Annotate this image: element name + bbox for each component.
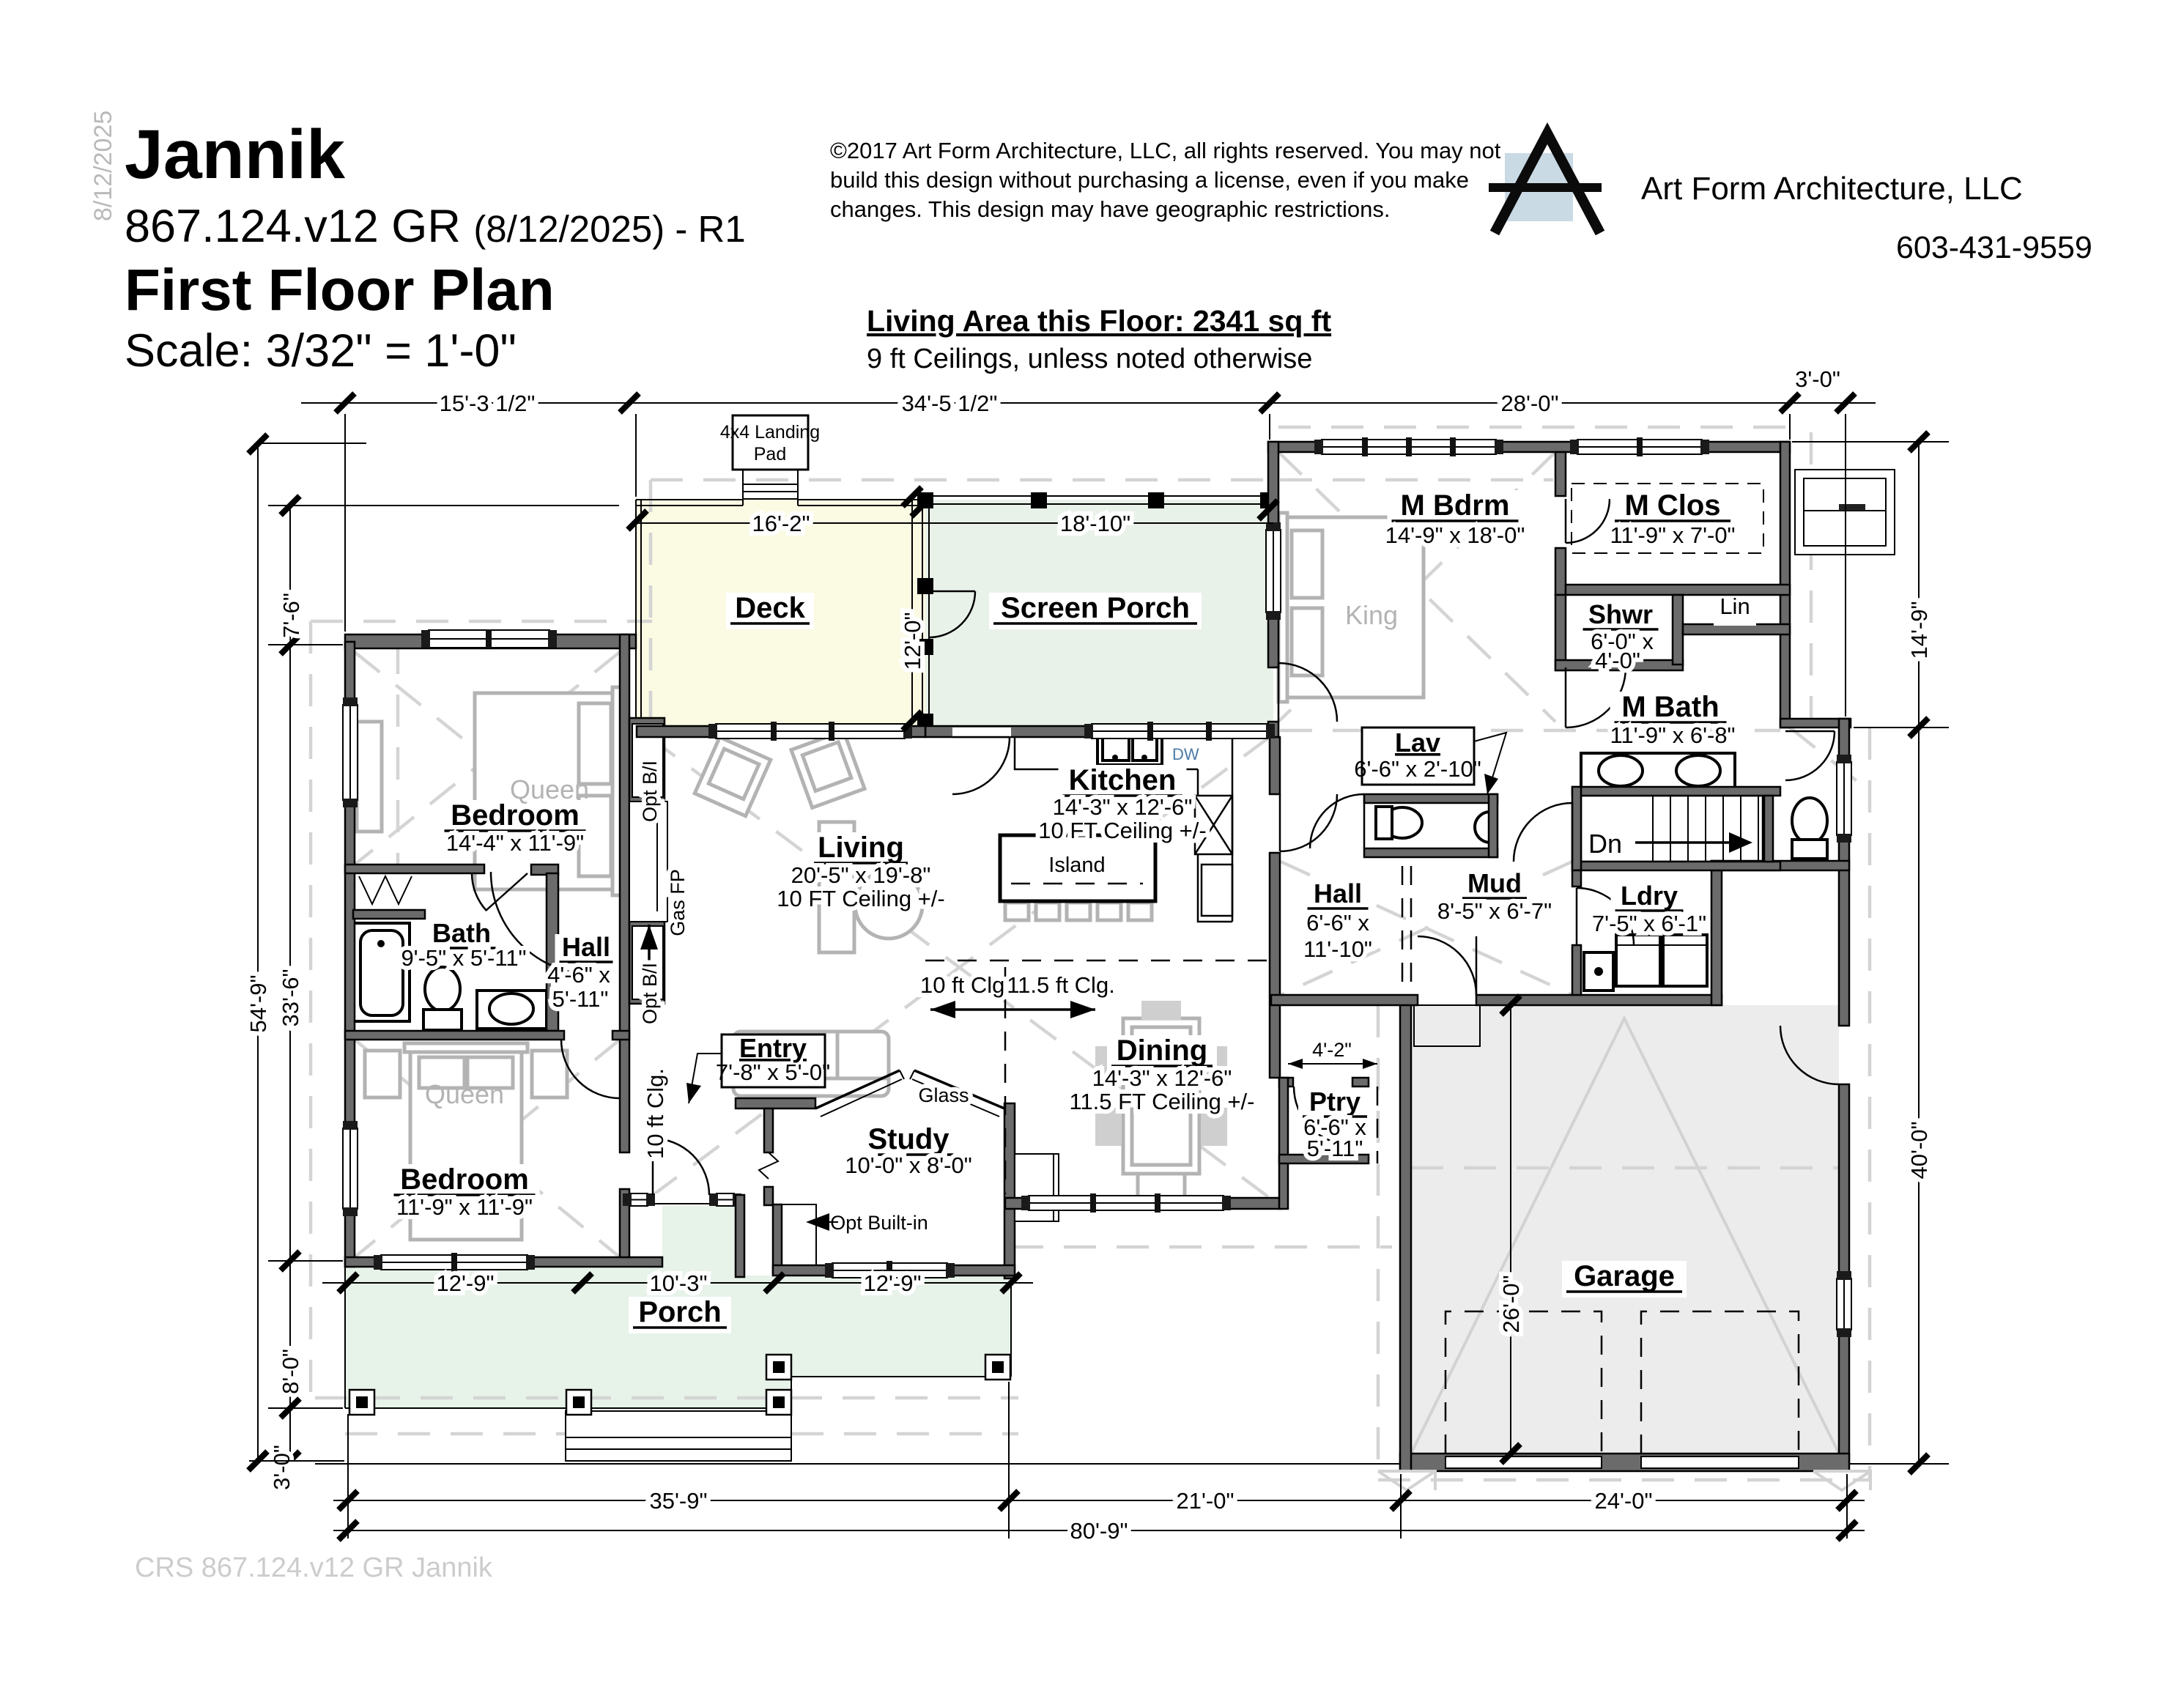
svg-text:3'-0": 3'-0" (269, 1445, 295, 1490)
svg-text:Hall: Hall (1314, 878, 1362, 908)
svg-text:8/12/2025: 8/12/2025 (89, 111, 117, 221)
svg-text:First Floor Plan: First Floor Plan (125, 257, 555, 322)
svg-text:Living Area this Floor: 2341 s: Living Area this Floor: 2341 sq ft (867, 304, 1331, 338)
svg-text:Gas FP: Gas FP (667, 869, 689, 936)
svg-text:34'-5 1/2": 34'-5 1/2" (902, 390, 998, 416)
svg-text:Lav: Lav (1395, 728, 1440, 758)
svg-text:Study: Study (867, 1123, 950, 1155)
svg-text:11'-9" x 7'-0": 11'-9" x 7'-0" (1610, 522, 1735, 548)
svg-text:Shwr: Shwr (1588, 599, 1653, 629)
svg-text:©2017 Art Form Architecture, L: ©2017 Art Form Architecture, LLC, all ri… (830, 138, 1501, 163)
svg-text:16'-2": 16'-2" (752, 511, 810, 536)
svg-text:14'-3" x 12'-6": 14'-3" x 12'-6" (1092, 1065, 1232, 1091)
svg-text:Lin: Lin (1720, 593, 1750, 619)
svg-text:Kitchen: Kitchen (1069, 764, 1177, 796)
svg-text:DW: DW (1172, 745, 1199, 763)
svg-text:28'-0": 28'-0" (1501, 390, 1559, 416)
svg-text:603-431-9559: 603-431-9559 (1896, 230, 2092, 265)
svg-text:11'-9" x 6'-8": 11'-9" x 6'-8" (1610, 722, 1735, 748)
svg-text:11'-10": 11'-10" (1303, 936, 1372, 962)
svg-text:Scale: 3/32" = 1'-0": Scale: 3/32" = 1'-0" (125, 325, 517, 377)
svg-text:6'-6" x: 6'-6" x (1306, 910, 1369, 936)
svg-text:M Clos: M Clos (1624, 489, 1720, 522)
svg-text:54'-9": 54'-9" (245, 975, 271, 1033)
svg-text:Opt B/I: Opt B/I (639, 963, 661, 1024)
svg-text:4'-0": 4'-0" (1595, 648, 1640, 673)
svg-text:10 ft Clg.: 10 ft Clg. (643, 1068, 668, 1159)
svg-text:10 FT Ceiling +/-: 10 FT Ceiling +/- (777, 886, 944, 911)
svg-text:8'-0": 8'-0" (278, 1349, 303, 1394)
svg-text:9 ft Ceilings, unless noted ot: 9 ft Ceilings, unless noted otherwise (867, 344, 1312, 374)
svg-text:Hall: Hall (562, 932, 610, 962)
svg-text:15'-3 1/2": 15'-3 1/2" (440, 390, 536, 416)
svg-text:6'-6" x 2'-10": 6'-6" x 2'-10" (1354, 756, 1481, 782)
svg-text:21'-0": 21'-0" (1177, 1488, 1234, 1514)
svg-text:7'-6": 7'-6" (278, 593, 304, 638)
svg-text:Queen: Queen (510, 774, 589, 804)
svg-text:Opt Built-in: Opt Built-in (830, 1212, 928, 1234)
svg-text:10 ft Clg.: 10 ft Clg. (920, 972, 1011, 998)
svg-text:14'-9" x 18'-0": 14'-9" x 18'-0" (1385, 522, 1525, 548)
svg-text:Bedroom: Bedroom (400, 1163, 529, 1196)
svg-text:Glass: Glass (918, 1084, 969, 1106)
svg-text:Mud: Mud (1467, 868, 1522, 898)
svg-text:changes. This design may have: changes. This design may have geographic… (830, 196, 1391, 222)
svg-text:3'-0": 3'-0" (1795, 366, 1840, 392)
svg-text:35'-9": 35'-9" (650, 1488, 708, 1514)
svg-text:Bath: Bath (432, 918, 491, 948)
svg-text:24'-0": 24'-0" (1595, 1488, 1653, 1514)
svg-text:Ptry: Ptry (1309, 1087, 1361, 1117)
svg-text:Opt B/I: Opt B/I (639, 760, 661, 822)
svg-text:4'-2": 4'-2" (1312, 1039, 1352, 1061)
svg-text:11.5 ft Clg.: 11.5 ft Clg. (1007, 972, 1115, 998)
svg-text:10'-3": 10'-3" (650, 1270, 708, 1296)
svg-text:M Bath: M Bath (1621, 691, 1719, 723)
svg-text:9'-5" x 5'-11": 9'-5" x 5'-11" (401, 945, 526, 971)
svg-text:20'-5" x 19'-8": 20'-5" x 19'-8" (791, 862, 931, 888)
svg-text:26'-0": 26'-0" (1498, 1276, 1524, 1333)
svg-text:14'-9": 14'-9" (1906, 601, 1932, 659)
svg-text:M Bdrm: M Bdrm (1401, 489, 1510, 522)
svg-text:Dining: Dining (1117, 1034, 1207, 1067)
svg-text:7'-5" x 6'-1": 7'-5" x 6'-1" (1592, 911, 1706, 936)
svg-text:12'-0": 12'-0" (900, 612, 925, 670)
svg-text:Porch: Porch (638, 1296, 721, 1328)
svg-text:Deck: Deck (735, 592, 805, 624)
svg-text:14'-4" x 11'-9": 14'-4" x 11'-9" (446, 830, 584, 856)
svg-text:4'-6" x: 4'-6" x (547, 962, 610, 988)
svg-text:33'-6": 33'-6" (278, 969, 303, 1027)
svg-text:11'-9" x 11'-9": 11'-9" x 11'-9" (396, 1194, 533, 1220)
svg-text:5'-11": 5'-11" (552, 986, 609, 1012)
svg-text:Living: Living (818, 832, 904, 864)
svg-text:King: King (1345, 600, 1398, 630)
svg-text:Entry: Entry (739, 1033, 807, 1063)
svg-text:Island: Island (1048, 854, 1105, 877)
svg-text:12'-9": 12'-9" (864, 1270, 922, 1296)
svg-text:10 FT Ceiling +/-: 10 FT Ceiling +/- (1038, 818, 1206, 843)
svg-text:80'-9": 80'-9" (1070, 1518, 1128, 1544)
svg-text:14'-3" x 12'-6": 14'-3" x 12'-6" (1053, 794, 1193, 820)
svg-text:8'-5" x 6'-7": 8'-5" x 6'-7" (1437, 898, 1552, 924)
svg-text:11.5 FT Ceiling +/-: 11.5 FT Ceiling +/- (1070, 1089, 1255, 1114)
svg-text:Pad: Pad (754, 444, 786, 464)
svg-text:867.124.v12 GR (8/12/2025) - R: 867.124.v12 GR (8/12/2025) - R1 (125, 201, 746, 252)
svg-text:Dn: Dn (1588, 829, 1622, 859)
svg-text:4x4 Landing: 4x4 Landing (720, 422, 820, 443)
svg-text:Queen: Queen (425, 1079, 504, 1109)
svg-text:build this design without purc: build this design without purchasing a l… (830, 167, 1469, 193)
svg-text:10'-0" x 8'-0": 10'-0" x 8'-0" (845, 1152, 971, 1178)
svg-text:12'-9": 12'-9" (437, 1270, 495, 1296)
svg-text:5'-11": 5'-11" (1307, 1136, 1363, 1161)
svg-text:Art Form Architecture, LLC: Art Form Architecture, LLC (1641, 171, 2023, 207)
svg-text:CRS 867.124.v12 GR Jannik: CRS 867.124.v12 GR Jannik (135, 1552, 493, 1583)
svg-text:Garage: Garage (1574, 1260, 1675, 1292)
svg-text:Jannik: Jannik (125, 116, 345, 193)
svg-text:Ldry: Ldry (1621, 881, 1678, 911)
svg-text:7'-8" x 5'-0": 7'-8" x 5'-0" (716, 1059, 830, 1085)
svg-text:40'-0": 40'-0" (1906, 1122, 1932, 1180)
svg-text:18'-10": 18'-10" (1060, 511, 1130, 536)
svg-text:Screen Porch: Screen Porch (1001, 592, 1190, 624)
